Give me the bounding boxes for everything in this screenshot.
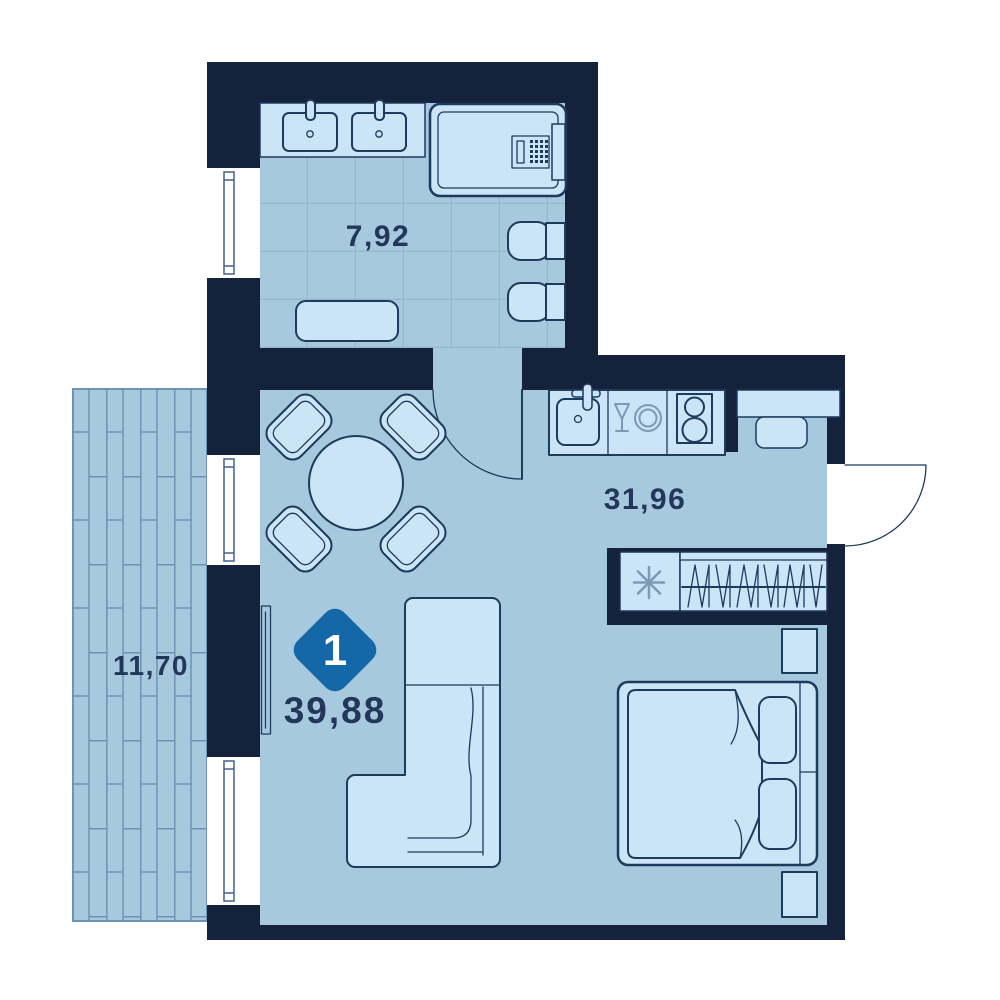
bathroom-area-label: 7,92 [346, 220, 410, 253]
nightstand-lower [782, 872, 817, 917]
toilet-upper [508, 222, 565, 260]
double-bed [618, 682, 817, 865]
wall-segment [207, 62, 598, 103]
round-table [309, 436, 403, 530]
toilet-bowl [508, 283, 550, 321]
bathroom-window [207, 168, 260, 278]
wardrobe-bottom-side [607, 611, 845, 625]
bath-bench [296, 301, 398, 341]
wall-segment [565, 103, 598, 355]
wall-segment [598, 355, 845, 390]
shower-cabin [430, 104, 566, 196]
entrance-door [827, 464, 926, 546]
living-window-upper [207, 455, 260, 565]
blanket [628, 690, 762, 858]
asterisk-icon [634, 567, 664, 598]
window-glass [224, 172, 234, 274]
total-area-label: 39,88 [284, 690, 387, 731]
window-glass [224, 459, 234, 561]
toilet-tank [546, 223, 565, 259]
window-glass [224, 761, 234, 901]
faucet-icon [375, 100, 384, 120]
floor-plan-page: 1 39,88 7,92 31,96 11,70 [0, 0, 1000, 1000]
shower-panel [552, 124, 565, 180]
bar-stool [756, 417, 807, 448]
wardrobe-hanging-cell [680, 552, 827, 611]
wardrobe [607, 548, 845, 625]
living-kitchen-area-label: 31,96 [604, 483, 687, 516]
door-opening [827, 464, 845, 544]
wall-segment [207, 925, 845, 940]
nightstand-upper [782, 629, 817, 673]
balcony-area-label: 11,70 [113, 650, 189, 681]
kitchen-wall-stub [725, 390, 738, 452]
kitchen [549, 384, 840, 455]
toilet-bowl [508, 222, 550, 260]
door-swing-arc [845, 465, 926, 546]
wall-segment [207, 348, 433, 390]
bathroom-door-opening-floor [433, 348, 522, 390]
faucet-icon [306, 100, 315, 120]
floor-plan-svg: 1 39,88 7,92 31,96 11,70 [0, 0, 1000, 1000]
toilet-lower [508, 283, 565, 321]
badge-rooms-count: 1 [323, 626, 347, 675]
toilet-tank [546, 284, 565, 320]
pillow [759, 779, 796, 849]
bar-counter [737, 390, 840, 417]
pillow [759, 697, 796, 763]
living-window-lower [207, 757, 260, 905]
